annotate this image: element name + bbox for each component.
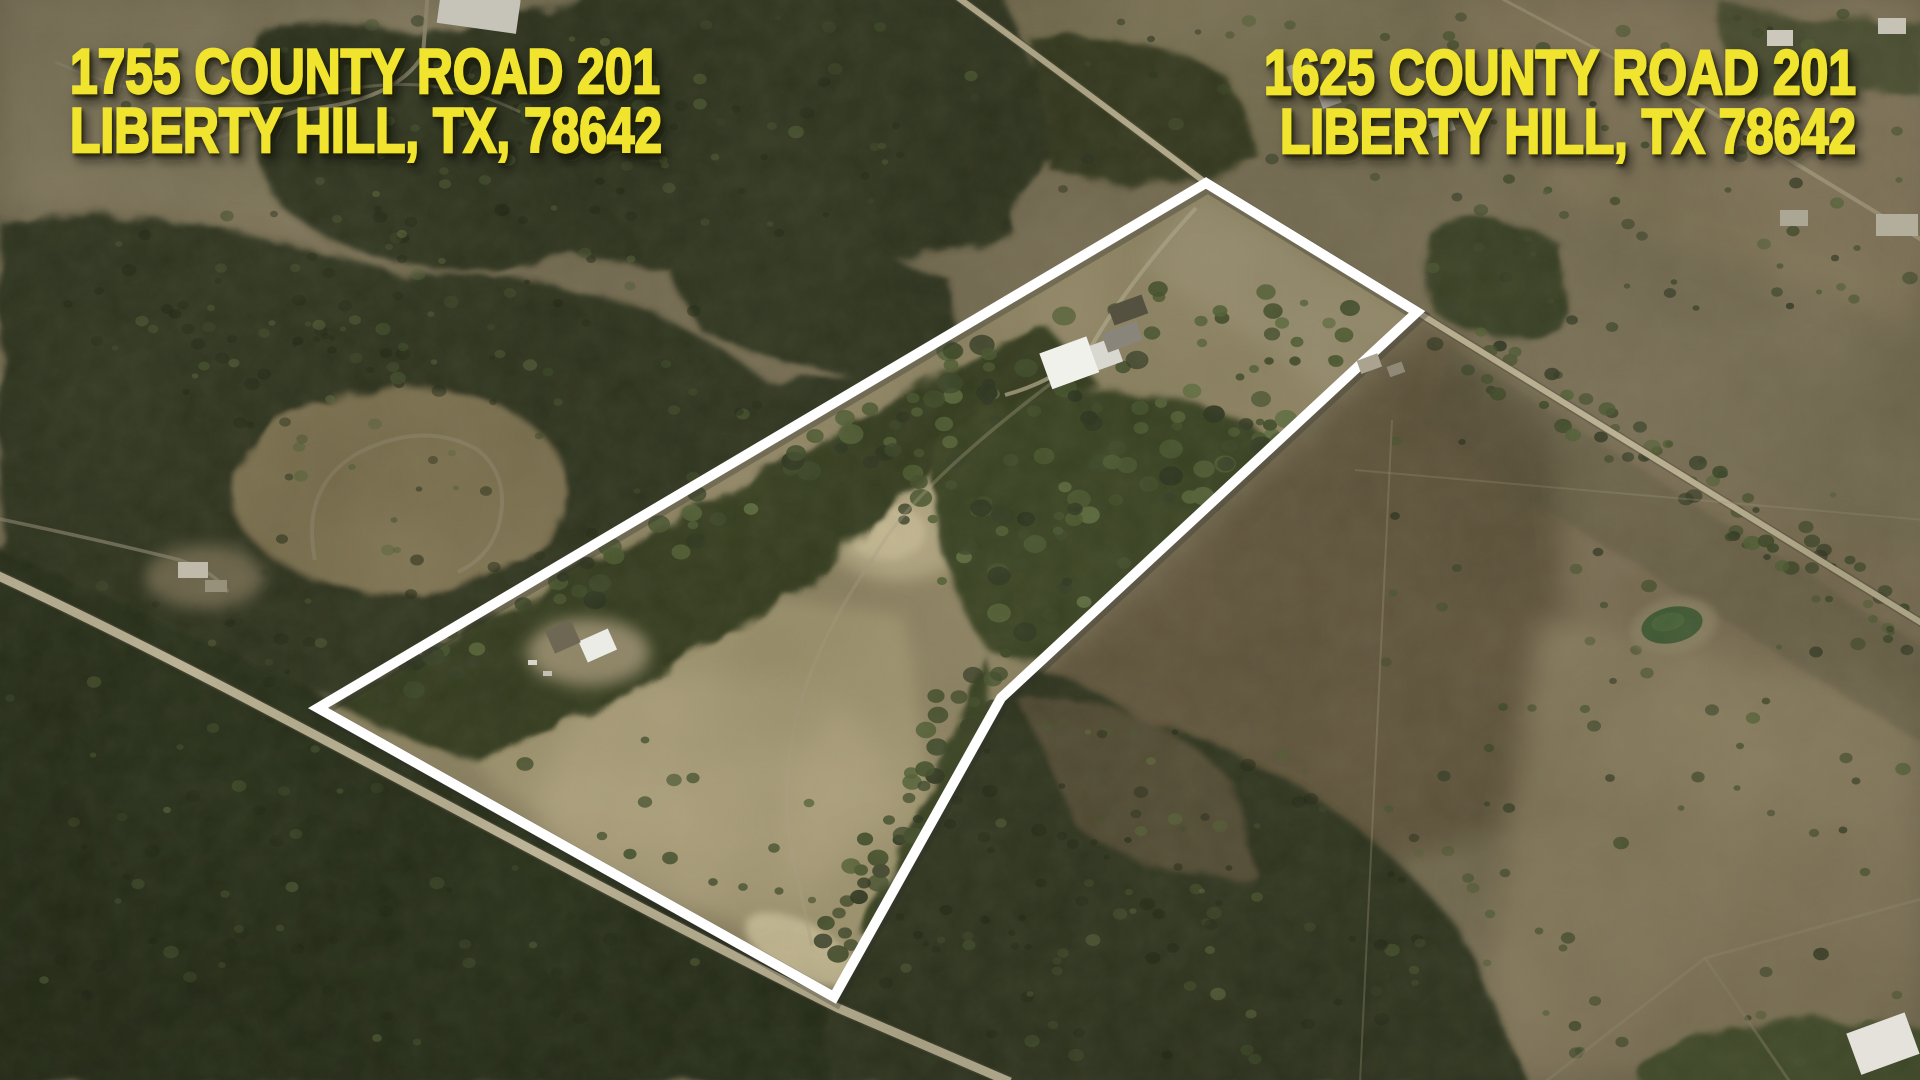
svg-text:LIBERTY HILL, TX, 78642: LIBERTY HILL, TX, 78642 <box>70 96 662 166</box>
svg-text:LIBERTY HILL, TX 78642: LIBERTY HILL, TX 78642 <box>1280 97 1856 167</box>
